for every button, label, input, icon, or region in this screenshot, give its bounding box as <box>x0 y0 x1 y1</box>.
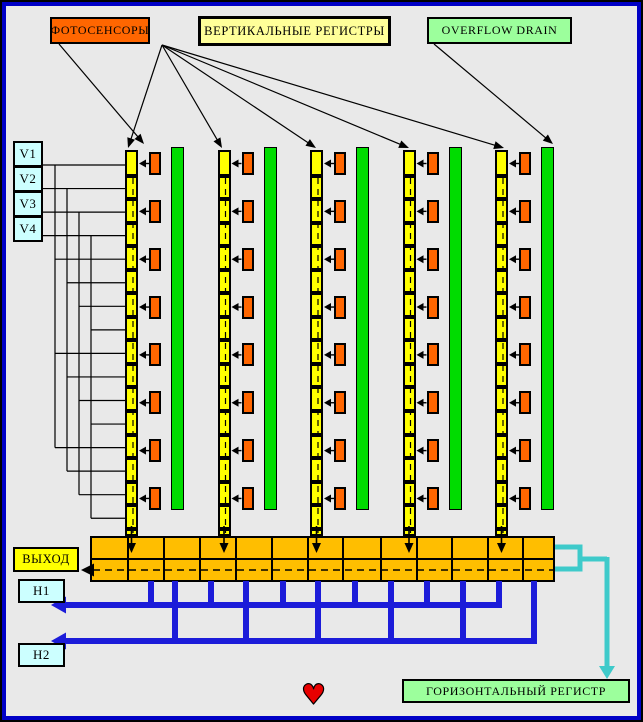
photosensor <box>149 487 161 510</box>
register-gate-separator <box>125 503 138 507</box>
vertical-register-1 <box>125 150 138 536</box>
photosensor <box>242 487 254 510</box>
register-gate-separator <box>218 174 231 178</box>
vertical-register-5 <box>495 150 508 536</box>
photosensor <box>519 391 531 414</box>
register-gate-separator <box>495 527 508 531</box>
register-gate-separator <box>495 197 508 201</box>
transfer-arrow-head <box>417 351 424 359</box>
register-gate-separator <box>125 456 138 460</box>
transfer-arrow-head <box>232 399 239 407</box>
photosensor <box>334 343 346 366</box>
register-gate-separator <box>125 291 138 295</box>
photosensors-legend: ФОТОСЕНСОРЫ <box>50 17 150 44</box>
phase-v3-label: V3 <box>20 196 37 212</box>
transfer-arrow-head <box>139 303 146 311</box>
transfer-arrow-head <box>509 303 516 311</box>
photosensor <box>427 343 439 366</box>
vertical-register-2 <box>218 150 231 536</box>
register-gate-separator <box>218 456 231 460</box>
vertical-register-pointer-head <box>214 137 222 148</box>
vertical-register-pointer-line <box>162 45 219 144</box>
register-gate-separator <box>495 268 508 272</box>
register-gate-separator <box>218 268 231 272</box>
transfer-arrow-head <box>509 207 516 215</box>
register-gate-separator <box>403 433 416 437</box>
photosensor <box>149 152 161 175</box>
register-gate-separator <box>310 174 323 178</box>
phase-box-h1: H1 <box>18 579 65 603</box>
phase-h2-label: H2 <box>33 647 50 663</box>
register-gate-separator <box>495 433 508 437</box>
photosensor <box>427 152 439 175</box>
register-gate-separator <box>125 527 138 531</box>
transfer-arrow-head <box>139 447 146 455</box>
register-gate-separator <box>310 244 323 248</box>
transfer-arrow-head <box>509 351 516 359</box>
transfer-arrow-head <box>509 494 516 502</box>
transfer-arrow-head <box>232 447 239 455</box>
phase-box-v2: V2 <box>13 166 43 192</box>
photosensor <box>149 248 161 271</box>
photosensor <box>242 343 254 366</box>
register-gate-separator <box>218 315 231 319</box>
transfer-arrow-head <box>232 255 239 263</box>
photosensor <box>334 248 346 271</box>
register-gate-separator <box>403 244 416 248</box>
register-gate-separator <box>218 362 231 366</box>
photosensor <box>149 391 161 414</box>
register-gate-separator <box>403 456 416 460</box>
register-gate-separator <box>310 480 323 484</box>
transfer-arrow-head <box>417 399 424 407</box>
vertical-register-pointer-line <box>130 45 162 143</box>
photosensor <box>519 487 531 510</box>
legend-pointer-arrows <box>59 44 553 149</box>
transfer-arrow-head <box>417 447 424 455</box>
transfer-arrow-head <box>232 207 239 215</box>
vertical-register-3 <box>310 150 323 536</box>
photosensor <box>427 391 439 414</box>
transfer-arrow-head <box>324 494 331 502</box>
transfer-arrow-head <box>509 160 516 168</box>
phase-box-v1: V1 <box>13 141 43 167</box>
register-gate-separator <box>403 291 416 295</box>
register-gate-separator <box>125 480 138 484</box>
photosensor <box>242 391 254 414</box>
photosensor <box>519 152 531 175</box>
photosensor <box>427 487 439 510</box>
register-gate-separator <box>310 268 323 272</box>
register-gate-separator <box>495 315 508 319</box>
heart-icon: ♥ <box>301 681 326 709</box>
register-gate-separator <box>403 527 416 531</box>
register-gate-separator <box>218 221 231 225</box>
horizontal-register-label: ГОРИЗОНТАЛЬНЫЙ РЕГИСТР <box>426 684 606 699</box>
register-gate-separator <box>403 503 416 507</box>
register-gate-separator <box>218 244 231 248</box>
output-arrow-head <box>599 666 615 679</box>
output-signal-path <box>555 545 615 680</box>
register-gate-separator <box>495 480 508 484</box>
transfer-arrow-head <box>139 351 146 359</box>
photosensor <box>334 152 346 175</box>
transfer-arrow-head <box>324 303 331 311</box>
photosensor <box>149 439 161 462</box>
register-gate-separator <box>495 409 508 413</box>
phase-box-v4: V4 <box>13 216 43 242</box>
register-gate-separator <box>403 197 416 201</box>
transfer-arrow-head <box>324 255 331 263</box>
photosensor <box>242 439 254 462</box>
register-gate-separator <box>495 291 508 295</box>
photosensor <box>519 343 531 366</box>
phase-v4-label: V4 <box>20 221 37 237</box>
overflow-drain-label: OVERFLOW DRAIN <box>442 23 558 38</box>
register-gate-separator <box>218 385 231 389</box>
register-gate-separator <box>125 174 138 178</box>
photosensor <box>519 296 531 319</box>
photosensor <box>334 296 346 319</box>
phase-box-v3: V3 <box>13 191 43 217</box>
register-gate-separator <box>310 433 323 437</box>
register-gate-separator <box>310 527 323 531</box>
phase-h1-label: H1 <box>33 583 50 599</box>
overflow-drain-legend: OVERFLOW DRAIN <box>427 17 572 44</box>
transfer-arrow-head <box>324 351 331 359</box>
register-gate-separator <box>125 338 138 342</box>
register-gate-separator <box>495 362 508 366</box>
horizontal-register-row-divider <box>92 558 553 560</box>
phase-v2-label: V2 <box>20 171 37 187</box>
vertical-register-pointer-line <box>162 45 499 147</box>
register-gate-separator <box>218 527 231 531</box>
transfer-arrow-head <box>139 255 146 263</box>
register-gate-separator <box>495 174 508 178</box>
photosensor <box>149 296 161 319</box>
register-gate-separator <box>403 362 416 366</box>
register-gate-separator <box>310 197 323 201</box>
register-gate-separator <box>218 409 231 413</box>
phase-v1-label: V1 <box>20 146 37 162</box>
vertical-registers-label: ВЕРТИКАЛЬНЫЕ РЕГИСТРЫ <box>204 24 385 39</box>
register-gate-separator <box>125 244 138 248</box>
transfer-arrow-head <box>232 351 239 359</box>
overflow-drain-channel-5 <box>541 147 554 510</box>
transfer-arrow-head <box>417 207 424 215</box>
vertical-register-pointer-line <box>162 45 312 145</box>
transfer-arrow-head <box>139 207 146 215</box>
register-gate-separator <box>403 315 416 319</box>
sensor-transfer-arrows <box>139 160 519 503</box>
photosensor-pointer-line <box>59 44 141 140</box>
overflow-drain-pointer-line <box>434 44 549 141</box>
register-gate-separator <box>495 244 508 248</box>
register-gate-separator <box>125 197 138 201</box>
register-gate-separator <box>218 480 231 484</box>
register-gate-separator <box>310 385 323 389</box>
register-gate-separator <box>403 338 416 342</box>
overflow-drain-pointer-head <box>543 135 553 144</box>
register-gate-separator <box>218 338 231 342</box>
transfer-arrow-head <box>324 447 331 455</box>
photosensor <box>427 200 439 223</box>
phase-box-h2: H2 <box>18 643 65 667</box>
photosensors-label: ФОТОСЕНСОРЫ <box>51 23 150 38</box>
photosensor <box>334 391 346 414</box>
register-gate-separator <box>310 409 323 413</box>
register-gate-separator <box>310 362 323 366</box>
transfer-arrow-head <box>139 399 146 407</box>
register-gate-separator <box>125 221 138 225</box>
register-gate-separator <box>310 315 323 319</box>
register-gate-separator <box>125 268 138 272</box>
photosensor <box>334 439 346 462</box>
photosensor <box>242 296 254 319</box>
transfer-arrow-head <box>232 160 239 168</box>
register-gate-separator <box>403 221 416 225</box>
horizontal-clock-bus <box>51 581 537 650</box>
register-gate-separator <box>495 456 508 460</box>
register-gate-separator <box>310 221 323 225</box>
transfer-arrow-head <box>324 160 331 168</box>
register-gate-separator <box>218 291 231 295</box>
transfer-arrow-head <box>417 255 424 263</box>
photosensor-pointer-head <box>134 134 144 144</box>
overflow-drain-channel-2 <box>264 147 277 510</box>
register-gate-separator <box>495 385 508 389</box>
transfer-arrow-head <box>509 255 516 263</box>
overflow-drain-channel-3 <box>356 147 369 510</box>
vertical-register-pointer-head <box>493 141 504 149</box>
register-gate-separator <box>218 197 231 201</box>
photosensor <box>149 200 161 223</box>
photosensor <box>519 248 531 271</box>
photosensor <box>334 487 346 510</box>
photosensor <box>149 343 161 366</box>
output-label: ВЫХОД <box>22 552 70 567</box>
photosensor <box>427 439 439 462</box>
vertical-registers-legend: ВЕРТИКАЛЬНЫЕ РЕГИСТРЫ <box>198 16 391 46</box>
register-gate-separator <box>495 338 508 342</box>
transfer-arrow-head <box>509 399 516 407</box>
register-gate-separator <box>403 385 416 389</box>
vertical-clock-bus-lines <box>43 165 125 518</box>
photosensor <box>334 200 346 223</box>
photosensor <box>242 200 254 223</box>
register-gate-separator <box>218 433 231 437</box>
horizontal-register-bar <box>90 536 555 582</box>
output-box: ВЫХОД <box>13 547 79 572</box>
photosensor <box>427 296 439 319</box>
photosensor <box>242 248 254 271</box>
transfer-arrow-head <box>417 303 424 311</box>
ccd-architecture-diagram: ФОТОСЕНСОРЫ ВЕРТИКАЛЬНЫЕ РЕГИСТРЫ OVERFL… <box>0 0 643 722</box>
vertical-register-pointer-head <box>305 139 316 148</box>
transfer-arrow-head <box>232 494 239 502</box>
transfer-arrow-head <box>417 160 424 168</box>
register-gate-separator <box>125 433 138 437</box>
vertical-register-pointer-head <box>127 137 135 148</box>
register-gate-separator <box>310 503 323 507</box>
transfer-arrow-head <box>417 494 424 502</box>
photosensor <box>242 152 254 175</box>
overflow-drain-channel-1 <box>171 147 184 510</box>
register-gate-separator <box>403 174 416 178</box>
vertical-register-4 <box>403 150 416 536</box>
photosensor <box>519 439 531 462</box>
register-gate-separator <box>403 268 416 272</box>
register-gate-separator <box>125 362 138 366</box>
register-gate-separator <box>495 503 508 507</box>
register-gate-separator <box>125 385 138 389</box>
transfer-arrow-head <box>139 494 146 502</box>
register-gate-separator <box>310 338 323 342</box>
register-gate-separator <box>218 503 231 507</box>
photosensor <box>519 200 531 223</box>
register-gate-separator <box>125 409 138 413</box>
transfer-arrow-head <box>324 399 331 407</box>
transfer-arrow-head <box>139 160 146 168</box>
vertical-register-pointer-head <box>398 140 409 148</box>
vertical-register-pointer-line <box>162 45 404 146</box>
register-gate-separator <box>403 409 416 413</box>
register-gate-separator <box>310 456 323 460</box>
register-gate-separator <box>495 221 508 225</box>
register-gate-separator <box>125 315 138 319</box>
register-gate-separator <box>310 291 323 295</box>
overflow-drain-channel-4 <box>449 147 462 510</box>
register-gate-separator <box>403 480 416 484</box>
transfer-arrow-head <box>509 447 516 455</box>
photosensor <box>427 248 439 271</box>
transfer-arrow-head <box>232 303 239 311</box>
horizontal-register-legend: ГОРИЗОНТАЛЬНЫЙ РЕГИСТР <box>402 679 630 703</box>
transfer-arrow-head <box>324 207 331 215</box>
